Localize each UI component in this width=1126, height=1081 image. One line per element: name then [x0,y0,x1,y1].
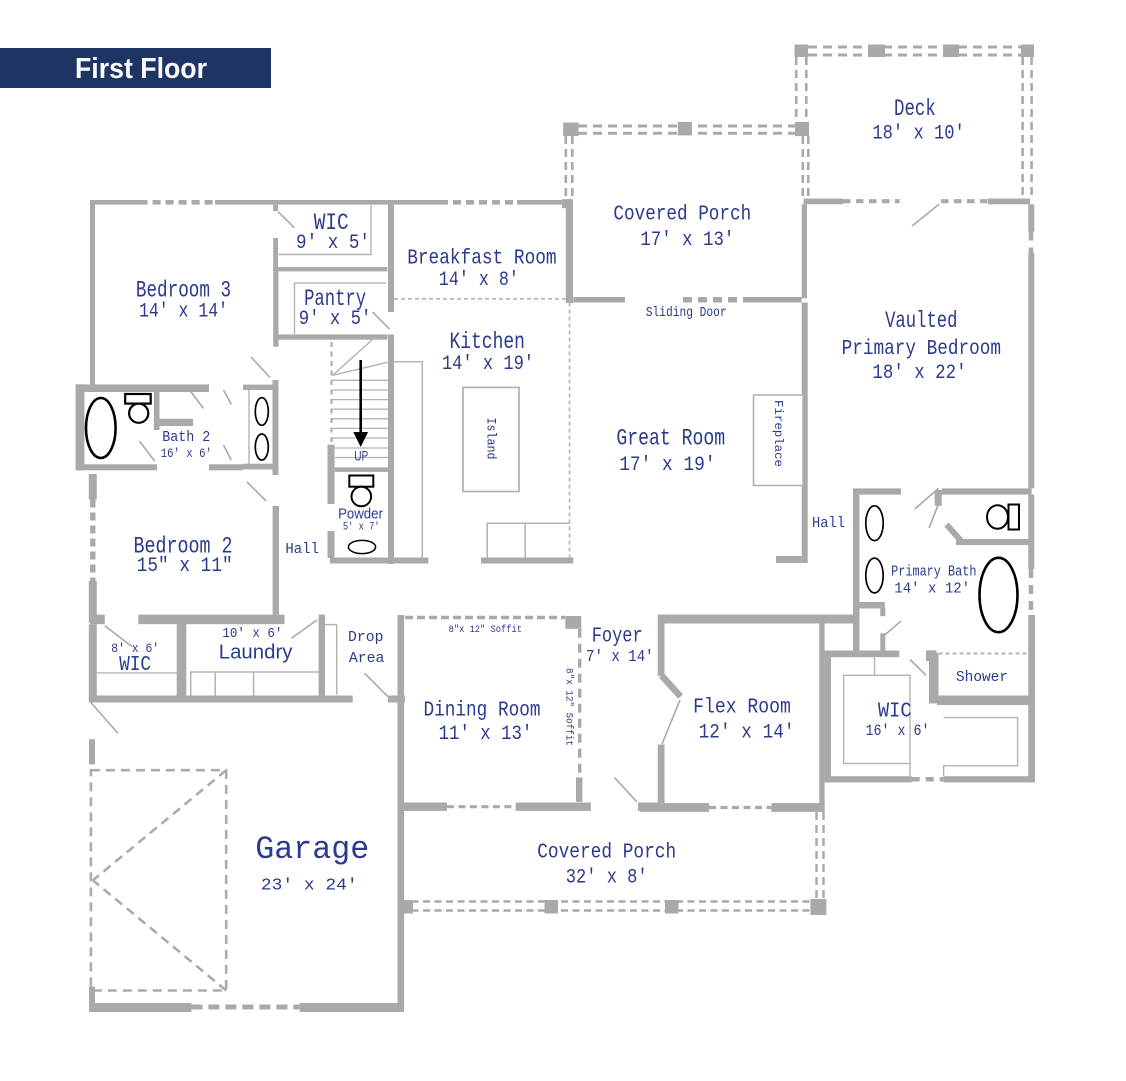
svg-text:Sliding Door: Sliding Door [646,306,727,321]
svg-text:18' x 22': 18' x 22' [872,362,966,385]
svg-text:23' x 24': 23' x 24' [261,877,358,896]
svg-text:Drop: Drop [348,629,384,646]
svg-text:UP: UP [354,448,368,464]
svg-text:14' x 19': 14' x 19' [442,353,534,376]
svg-text:14' x 14': 14' x 14' [139,301,228,324]
svg-text:Garage: Garage [255,831,369,868]
svg-text:Deck: Deck [894,96,936,122]
svg-text:15" x 11": 15" x 11" [137,555,233,578]
svg-text:Kitchen: Kitchen [450,329,525,355]
svg-text:WIC: WIC [878,701,912,724]
svg-text:16' x 6': 16' x 6' [161,446,212,461]
svg-text:9' x 5': 9' x 5' [299,308,372,331]
svg-text:14' x 12': 14' x 12' [894,581,970,598]
svg-text:Flex Room: Flex Room [693,697,791,720]
svg-text:Fireplace: Fireplace [771,400,785,467]
svg-text:32' x 8': 32' x 8' [566,867,648,890]
svg-text:Powder: Powder [338,506,383,523]
svg-text:8"x 12" Soffit: 8"x 12" Soffit [563,668,575,746]
svg-text:Hall: Hall [285,541,319,558]
svg-text:7' x 14': 7' x 14' [586,648,654,667]
svg-text:10' x 6': 10' x 6' [222,626,282,642]
svg-text:Breakfast Room: Breakfast Room [407,248,556,271]
svg-text:WIC: WIC [119,654,151,677]
svg-text:Covered Porch: Covered Porch [537,842,676,865]
svg-text:5' x 7': 5' x 7' [343,522,380,534]
svg-text:Island: Island [484,418,499,460]
svg-text:Primary Bath: Primary Bath [891,563,976,580]
svg-text:14' x 8': 14' x 8' [439,269,519,292]
svg-text:Area: Area [349,650,385,667]
svg-text:17' x 13': 17' x 13' [640,229,734,252]
svg-text:11' x 13': 11' x 13' [439,723,533,746]
svg-text:Shower: Shower [956,669,1008,686]
svg-text:Laundry: Laundry [219,641,293,663]
svg-text:17' x 19': 17' x 19' [619,454,715,477]
svg-text:8"x 12" Soffit: 8"x 12" Soffit [449,624,522,636]
svg-text:12' x 14': 12' x 14' [699,721,795,744]
svg-text:Vaulted: Vaulted [885,308,957,334]
svg-text:Dining Room: Dining Room [423,700,540,723]
svg-text:18' x 10': 18' x 10' [872,123,964,146]
svg-text:16' x 6': 16' x 6' [866,722,930,740]
svg-text:9' x 5': 9' x 5' [296,232,370,255]
svg-text:Foyer: Foyer [592,626,643,649]
svg-text:Primary Bedroom: Primary Bedroom [842,338,1001,361]
svg-text:Bath 2: Bath 2 [162,429,210,446]
svg-text:Hall: Hall [812,515,845,532]
svg-text:First Floor: First Floor [75,53,207,85]
svg-text:Great Room: Great Room [616,426,725,452]
svg-text:Covered Porch: Covered Porch [613,204,751,227]
